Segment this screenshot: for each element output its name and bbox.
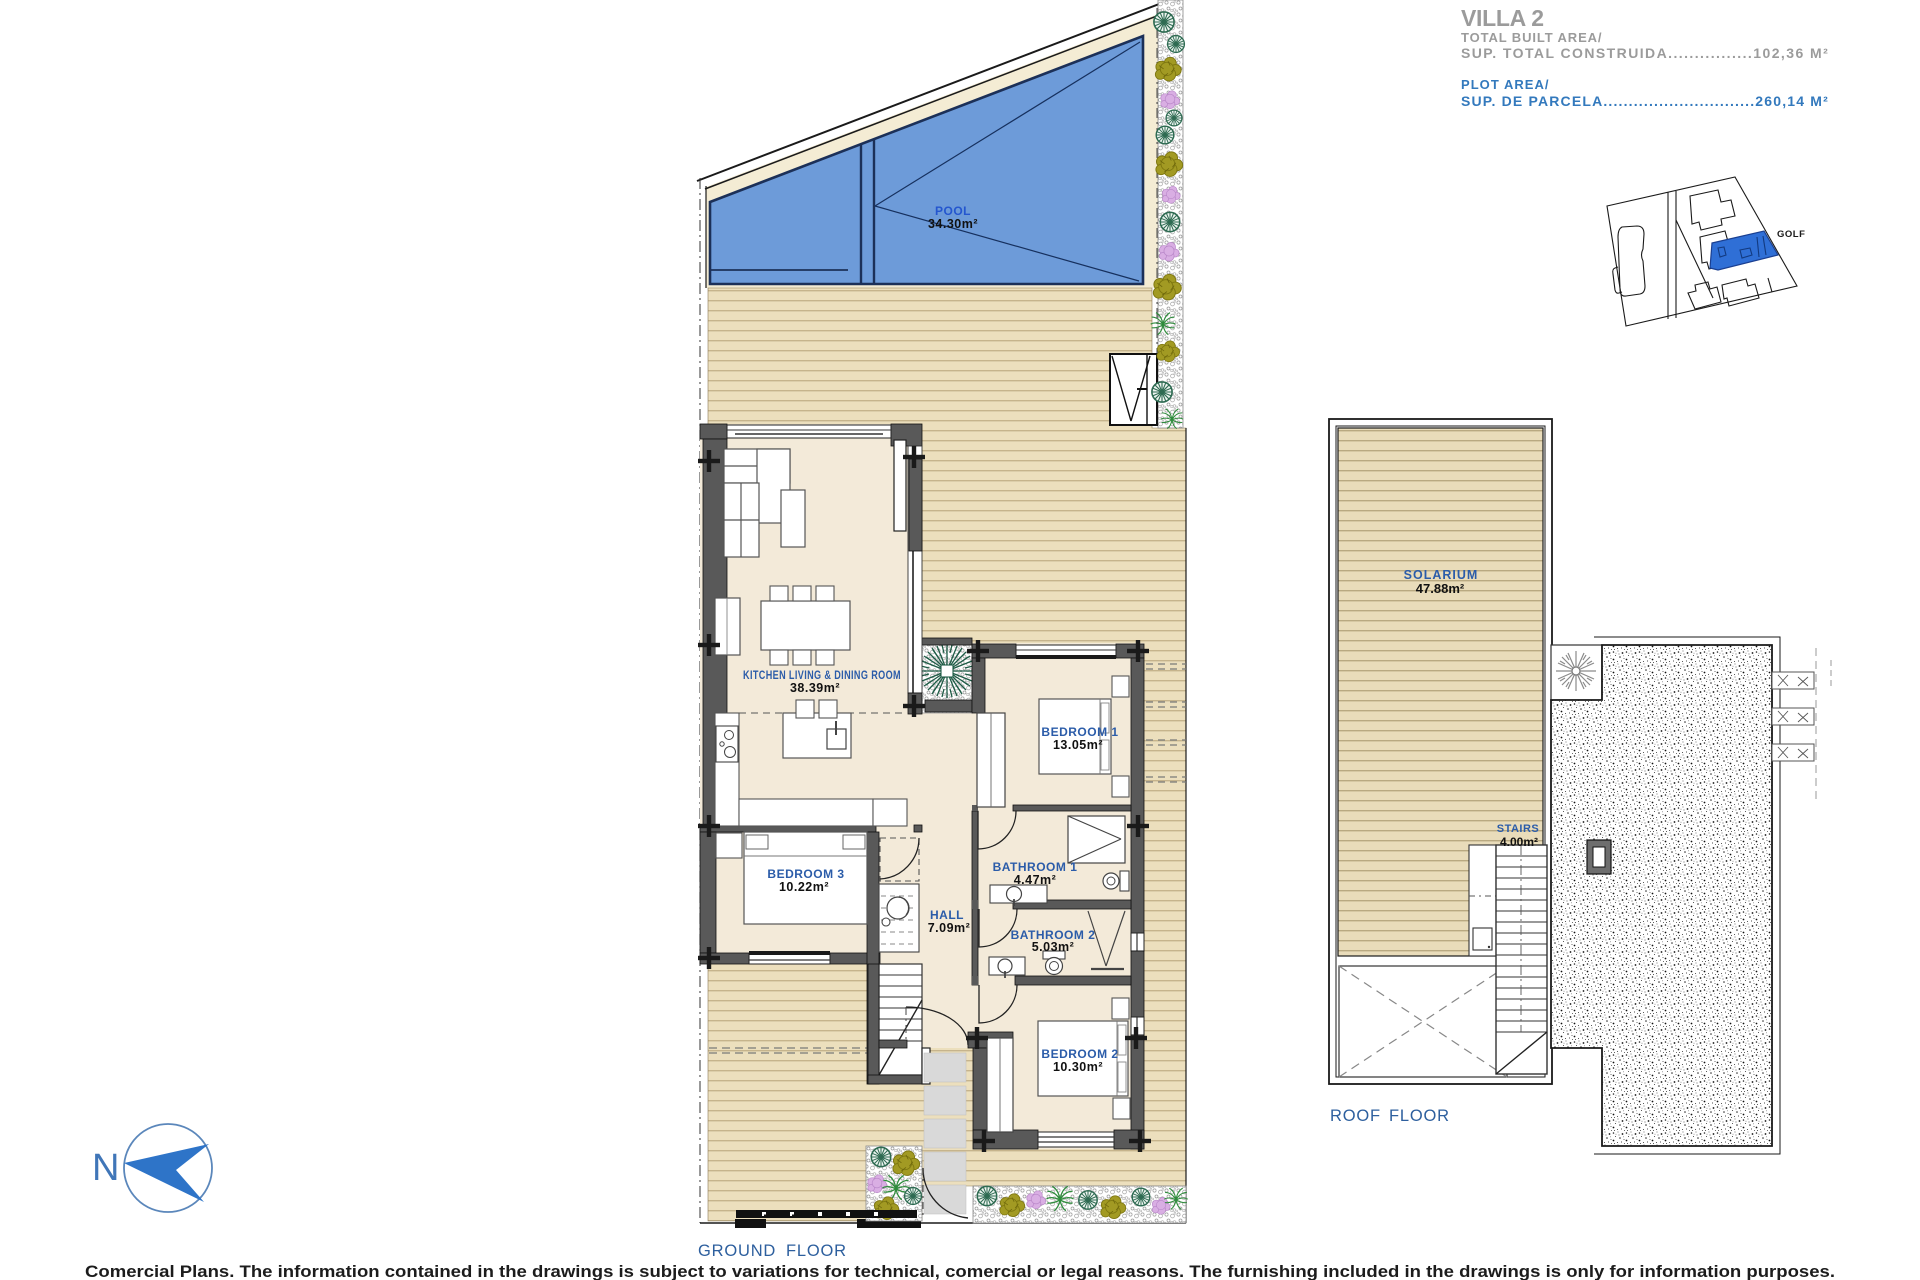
svg-text:POOL: POOL [935, 204, 971, 218]
svg-text:Comercial Plans. The inform: Comercial Plans. The information contain… [85, 1263, 1835, 1280]
svg-text:HALL: HALL [930, 908, 964, 922]
svg-text:SUP. TOTAL CONSTRUIDA.........: SUP. TOTAL CONSTRUIDA................102… [1461, 45, 1828, 61]
svg-text:KITCHEN LIVING & DINING ROOM: KITCHEN LIVING & DINING ROOM [743, 668, 901, 682]
svg-text:10.30m²: 10.30m² [1053, 1060, 1103, 1074]
svg-text:FLOOR: FLOOR [1389, 1107, 1450, 1125]
svg-text:4.47m²: 4.47m² [1014, 873, 1057, 887]
svg-text:VILLA 2: VILLA 2 [1461, 5, 1546, 31]
svg-text:BEDROOM 3: BEDROOM 3 [767, 867, 844, 881]
svg-text:BATHROOM 1: BATHROOM 1 [993, 860, 1078, 874]
svg-text:PLOT AREA/: PLOT AREA/ [1461, 77, 1549, 92]
svg-text:34.30m²: 34.30m² [928, 217, 978, 231]
svg-text:GOLF: GOLF [1777, 229, 1805, 240]
svg-text:10.22m²: 10.22m² [779, 880, 829, 894]
svg-text:5.03m²: 5.03m² [1032, 940, 1075, 954]
svg-text:47.88m²: 47.88m² [1416, 581, 1465, 596]
svg-text:4.00m²: 4.00m² [1500, 835, 1538, 849]
svg-text:BEDROOM 1: BEDROOM 1 [1041, 725, 1118, 739]
svg-text:13.05m²: 13.05m² [1053, 738, 1103, 752]
svg-text:STAIRS: STAIRS [1497, 823, 1540, 835]
svg-text:SOLARIUM: SOLARIUM [1404, 568, 1479, 582]
svg-text:N: N [92, 1147, 119, 1189]
svg-text:GROUND: GROUND [698, 1242, 776, 1260]
svg-text:TOTAL BUILT AREA/: TOTAL BUILT AREA/ [1461, 30, 1602, 45]
svg-text:7.09m²: 7.09m² [928, 921, 971, 935]
svg-text:38.39m²: 38.39m² [790, 681, 840, 695]
svg-text:FLOOR: FLOOR [786, 1242, 847, 1260]
svg-text:SUP. DE PARCELA...............: SUP. DE PARCELA.........................… [1461, 93, 1828, 109]
svg-text:ROOF: ROOF [1330, 1107, 1381, 1125]
svg-text:BEDROOM 2: BEDROOM 2 [1041, 1047, 1118, 1061]
